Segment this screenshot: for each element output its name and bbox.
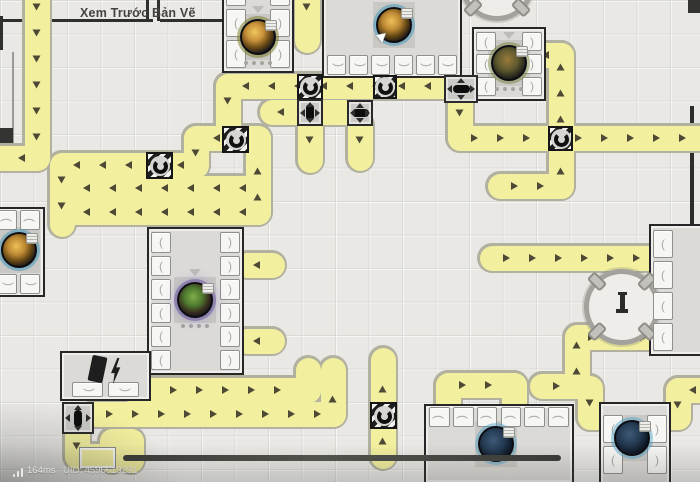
belt-arrow-icon — [187, 208, 194, 216]
arrow-right-icon — [86, 414, 91, 422]
slot-arc: ( — [118, 388, 130, 392]
belt-arrow-icon — [58, 203, 66, 210]
belt-arrow-icon — [125, 161, 132, 169]
pedestal-dot — [519, 87, 523, 91]
belt-arrow-icon — [253, 337, 260, 345]
belt-arrow-icon — [553, 382, 560, 390]
blueprint-preview-label: Xem Trước Bản Vẽ — [80, 6, 196, 20]
machine-input-slot[interactable]: ( — [476, 77, 496, 96]
belt-arrow-icon — [379, 438, 387, 445]
belt-arrow-icon — [277, 108, 284, 116]
machine-output-slot[interactable]: ) — [220, 350, 240, 371]
conveyor-belt-segment[interactable] — [296, 358, 321, 403]
pedestal-dot — [511, 87, 515, 91]
slot-arc: ) — [530, 80, 534, 92]
belt-arrow-icon — [511, 182, 518, 190]
tunnel-mouth-icon — [554, 132, 569, 147]
tunnel-mouth-icon — [153, 159, 168, 174]
belt-arrow-icon — [274, 386, 281, 394]
underground-belt-tunnel[interactable] — [297, 74, 323, 100]
slot-arc: ( — [24, 218, 36, 222]
machine-input-slot[interactable]: ( — [524, 407, 545, 427]
selection-bar[interactable] — [123, 455, 561, 461]
orb-badge-icon — [265, 20, 277, 31]
belt-splitter[interactable] — [444, 75, 478, 103]
arrow-down-icon — [74, 426, 82, 431]
belt-arrow-icon — [601, 134, 608, 142]
machine-input-slot[interactable]: ( — [653, 261, 673, 289]
slot-arc: ( — [397, 63, 409, 67]
belt-arrow-icon — [459, 381, 466, 389]
belt-arrow-icon — [33, 4, 41, 11]
belt-arrow-icon — [236, 410, 243, 418]
underground-belt-tunnel[interactable] — [222, 126, 249, 153]
belt-arrow-icon — [503, 254, 510, 262]
machine-input-slot[interactable]: ( — [653, 230, 673, 258]
slot-arc: ( — [1, 282, 13, 286]
lightning-icon — [88, 356, 128, 384]
orb-badge-icon — [639, 421, 651, 432]
machine-output-slot[interactable]: ( — [394, 55, 413, 75]
slot-arc: ( — [484, 58, 488, 70]
belt-arrow-icon — [253, 261, 260, 269]
monument-base — [616, 309, 628, 313]
conveyor-belt-segment[interactable] — [448, 126, 700, 151]
hopper-icon — [503, 32, 515, 39]
machine-output-slot[interactable]: ) — [220, 279, 240, 300]
arrow-right-icon — [315, 109, 320, 117]
machine-output-slot[interactable]: ( — [371, 55, 390, 75]
machine-power-slot[interactable]: ( — [72, 382, 103, 397]
slot-arc: ( — [661, 331, 665, 343]
belt-arrow-icon — [170, 386, 177, 394]
pedestal-dot — [244, 61, 248, 65]
monument-cap — [618, 292, 627, 295]
belt-arrow-icon — [262, 410, 269, 418]
belt-arrow-icon — [557, 90, 565, 97]
belt-arrow-icon — [158, 410, 165, 418]
belt-splitter[interactable] — [297, 99, 323, 126]
belt-arrow-icon — [192, 150, 200, 157]
belt-arrow-icon — [213, 208, 220, 216]
pedestal-dot — [181, 324, 185, 328]
belt-arrow-icon — [83, 184, 90, 192]
belt-arrow-icon — [633, 254, 640, 262]
arrow-up-icon — [356, 103, 364, 108]
belt-arrow-icon — [379, 386, 387, 393]
slot-arc: ( — [353, 63, 365, 67]
belt-arrow-icon — [573, 342, 581, 349]
slot-arc: ( — [553, 415, 565, 419]
orb-badge-icon — [202, 283, 214, 294]
belt-arrow-icon — [213, 184, 220, 192]
tunnel-mouth-icon — [378, 80, 393, 95]
machine-input-slot[interactable]: ( — [151, 279, 171, 300]
machine-input-slot[interactable]: ( — [0, 210, 17, 230]
belt-arrow-icon — [161, 208, 168, 216]
machine-output-slot[interactable]: ( — [20, 274, 40, 294]
wall-segment — [688, 0, 700, 13]
belt-arrow-icon — [346, 82, 353, 90]
belt-arrow-icon — [184, 410, 191, 418]
machine-power-slot[interactable]: ( — [108, 382, 139, 397]
slot-arc: ) — [278, 48, 282, 60]
belt-arrow-icon — [627, 134, 634, 142]
arrow-left-icon — [300, 109, 305, 117]
slot-arc: ) — [655, 454, 659, 466]
slot-arc: ( — [82, 388, 94, 392]
tunnel-mouth-icon — [377, 409, 392, 424]
slot-arc: ) — [530, 36, 534, 48]
belt-arrow-icon — [679, 134, 686, 142]
machine-input-slot[interactable]: ( — [653, 292, 673, 320]
slot-arc: ( — [159, 236, 163, 248]
slot-arc: ( — [159, 307, 163, 319]
slot-arc: ) — [228, 283, 232, 295]
belt-arrow-icon — [177, 161, 184, 169]
slot-arc: ( — [331, 63, 343, 67]
belt-arrow-icon — [485, 381, 492, 389]
arrow-left-icon — [447, 85, 452, 93]
machine-input-slot[interactable]: ( — [151, 232, 171, 253]
belt-arrow-icon — [33, 30, 41, 37]
underground-belt-tunnel[interactable] — [146, 152, 173, 179]
arrow-up-icon — [457, 78, 465, 83]
belt-arrow-icon — [58, 177, 66, 184]
belt-arrow-icon — [106, 410, 113, 418]
belt-arrow-icon — [398, 82, 405, 90]
machine-input-slot[interactable]: ( — [476, 32, 496, 51]
slot-arc: ( — [234, 17, 238, 29]
belt-arrow-icon — [254, 168, 262, 175]
uid-label: UID: 4596619291 — [63, 465, 137, 476]
machine-input-slot[interactable]: ( — [453, 407, 474, 427]
underground-belt-tunnel[interactable] — [548, 126, 573, 151]
belt-arrow-icon — [132, 410, 139, 418]
belt-arrow-icon — [83, 208, 90, 216]
belt-arrow-icon — [224, 98, 232, 105]
slot-arc: ( — [661, 238, 665, 250]
belt-arrow-icon — [135, 208, 142, 216]
tunnel-mouth-icon — [229, 133, 244, 148]
belt-arrow-icon — [456, 110, 464, 117]
slot-arc: ( — [234, 48, 238, 60]
machine-output-slot[interactable]: ) — [647, 446, 667, 474]
arrow-down-icon — [356, 118, 364, 123]
pedestal-dot — [197, 324, 201, 328]
belt-arrow-icon — [356, 137, 364, 144]
belt-arrow-icon — [314, 410, 321, 418]
machine-output-slot[interactable]: ( — [416, 55, 435, 75]
belt-arrow-icon — [674, 402, 682, 409]
orb-badge-icon — [26, 233, 38, 244]
belt-arrow-icon — [586, 400, 594, 407]
slot-arc: ) — [530, 58, 534, 70]
slot-arc: ( — [529, 415, 541, 419]
belt-arrow-icon — [424, 82, 431, 90]
machine-input-slot[interactable]: ( — [429, 407, 450, 427]
arrow-right-icon — [470, 85, 475, 93]
belt-arrow-icon — [529, 254, 536, 262]
machine-output-slot[interactable]: ( — [438, 55, 457, 75]
belt-arrow-icon — [161, 184, 168, 192]
arrow-up-icon — [306, 102, 314, 107]
pedestal-dot — [260, 61, 264, 65]
machine-output-slot[interactable]: ) — [220, 232, 240, 253]
machine-input-slot[interactable]: ( — [151, 303, 171, 324]
slot-arc: ) — [655, 423, 659, 435]
underground-belt-tunnel[interactable] — [370, 402, 397, 429]
belt-arrow-icon — [213, 134, 220, 142]
belt-arrow-icon — [653, 134, 660, 142]
machine-input-slot[interactable]: ( — [653, 323, 673, 351]
machine-input-slot[interactable]: ( — [477, 407, 498, 427]
slot-arc: ( — [661, 269, 665, 281]
belt-arrow-icon — [537, 182, 544, 190]
splitter-capsule — [453, 85, 470, 93]
belt-arrow-icon — [557, 168, 565, 175]
machine-input-slot[interactable]: ( — [226, 0, 246, 6]
slot-arc: ( — [661, 300, 665, 312]
slot-arc: ( — [457, 415, 469, 419]
slot-arc: ( — [611, 454, 615, 466]
arrow-down-icon — [306, 118, 314, 123]
belt-arrow-icon — [222, 386, 229, 394]
belt-arrow-icon — [607, 254, 614, 262]
orb-badge-icon — [516, 46, 528, 57]
belt-arrow-icon — [33, 56, 41, 63]
pedestal-dot — [503, 87, 507, 91]
arrow-down-icon — [457, 95, 465, 100]
belt-arrow-icon — [109, 208, 116, 216]
belt-arrow-icon — [210, 410, 217, 418]
belt-arrow-icon — [268, 82, 275, 90]
belt-arrow-icon — [254, 194, 262, 201]
machine-input-slot[interactable]: ( — [151, 326, 171, 347]
ping-label: 164ms — [27, 465, 56, 476]
belt-arrow-icon — [288, 410, 295, 418]
belt-arrow-icon — [497, 134, 504, 142]
belt-arrow-icon — [33, 134, 41, 141]
belt-arrow-icon — [33, 108, 41, 115]
arrow-left-icon — [350, 109, 355, 117]
belt-arrow-icon — [248, 386, 255, 394]
splitter-capsule — [74, 410, 82, 427]
conveyor-belt-segment[interactable] — [321, 358, 346, 427]
belt-arrow-icon — [581, 254, 588, 262]
machine-output-slot[interactable]: ( — [349, 55, 368, 75]
slot-arc: ( — [159, 283, 163, 295]
machine-output-slot[interactable]: ) — [220, 326, 240, 347]
pedestal-dot — [252, 61, 256, 65]
orb-badge-icon — [503, 427, 515, 438]
belt-arrow-icon — [557, 116, 565, 123]
belt-arrow-icon — [573, 368, 581, 375]
machine-output-slot[interactable]: ) — [522, 77, 542, 96]
tunnel-mouth-icon — [303, 80, 318, 95]
belt-arrow-icon — [329, 396, 337, 403]
belt-arrow-icon — [471, 134, 478, 142]
underground-belt-tunnel[interactable] — [373, 75, 397, 99]
belt-arrow-icon — [555, 254, 562, 262]
belt-arrow-icon — [99, 161, 106, 169]
machine-input-slot[interactable]: ( — [151, 256, 171, 277]
belt-arrow-icon — [187, 184, 194, 192]
slot-arc: ( — [484, 80, 488, 92]
belt-arrow-icon — [239, 184, 246, 192]
orb-badge-icon — [401, 8, 413, 19]
belt-arrow-icon — [242, 82, 249, 90]
slot-arc: ( — [159, 260, 163, 272]
pedestal-dot — [205, 324, 209, 328]
pedestal-dot — [189, 324, 193, 328]
machine-output-slot[interactable]: ) — [220, 303, 240, 324]
slot-arc: ( — [481, 415, 493, 419]
slot-arc: ( — [159, 354, 163, 366]
belt-arrow-icon — [135, 184, 142, 192]
belt-arrow-icon — [557, 64, 565, 71]
slot-arc: ( — [159, 330, 163, 342]
arrow-left-icon — [65, 414, 70, 422]
machine-input-slot[interactable]: ( — [20, 210, 40, 230]
game-viewport: Xem Trước Bản Vẽ 164ms UID: 4596619291 (… — [0, 0, 700, 482]
belt-splitter[interactable] — [347, 100, 373, 126]
machine-input-slot[interactable]: ( — [548, 407, 569, 427]
belt-arrow-icon — [73, 161, 80, 169]
machine-output-slot[interactable]: ( — [327, 55, 346, 75]
wall-segment — [0, 16, 3, 50]
slot-arc: ) — [228, 236, 232, 248]
belt-arrow-icon — [303, 4, 311, 11]
belt-arrow-icon — [575, 134, 582, 142]
slot-arc: ) — [228, 330, 232, 342]
machine-input-slot[interactable]: ( — [501, 407, 522, 427]
belt-arrow-icon — [33, 82, 41, 89]
slot-arc: ) — [228, 354, 232, 366]
belt-arrow-icon — [306, 137, 314, 144]
slot-arc: ) — [278, 17, 282, 29]
slot-arc: ) — [228, 260, 232, 272]
hopper-icon — [189, 269, 201, 276]
slot-arc: ) — [228, 307, 232, 319]
machine-input-slot[interactable]: ( — [151, 350, 171, 371]
machine-output-slot[interactable]: ( — [0, 274, 17, 294]
belt-arrow-icon — [239, 208, 246, 216]
arrow-right-icon — [365, 109, 370, 117]
monument-icon — [620, 295, 625, 309]
slot-arc: ( — [441, 63, 453, 67]
slot-arc: ( — [505, 415, 517, 419]
hopper-icon — [252, 6, 264, 13]
slot-arc: ( — [484, 36, 488, 48]
slot-arc: ( — [433, 415, 445, 419]
slot-arc: ( — [24, 282, 36, 286]
belt-arrow-icon — [18, 154, 25, 162]
belt-splitter[interactable] — [62, 402, 94, 434]
belt-arrow-icon — [109, 184, 116, 192]
belt-arrow-icon — [689, 386, 696, 394]
pedestal-dot — [495, 87, 499, 91]
belt-arrow-icon — [196, 386, 203, 394]
machine-output-slot[interactable]: ) — [220, 256, 240, 277]
arrow-up-icon — [74, 405, 82, 410]
machine-output-slot[interactable]: ) — [270, 0, 290, 6]
pedestal-dot — [268, 61, 272, 65]
slot-arc: ( — [419, 63, 431, 67]
slot-arc: ( — [1, 218, 13, 222]
belt-arrow-icon — [523, 134, 530, 142]
slot-arc: ( — [375, 63, 387, 67]
